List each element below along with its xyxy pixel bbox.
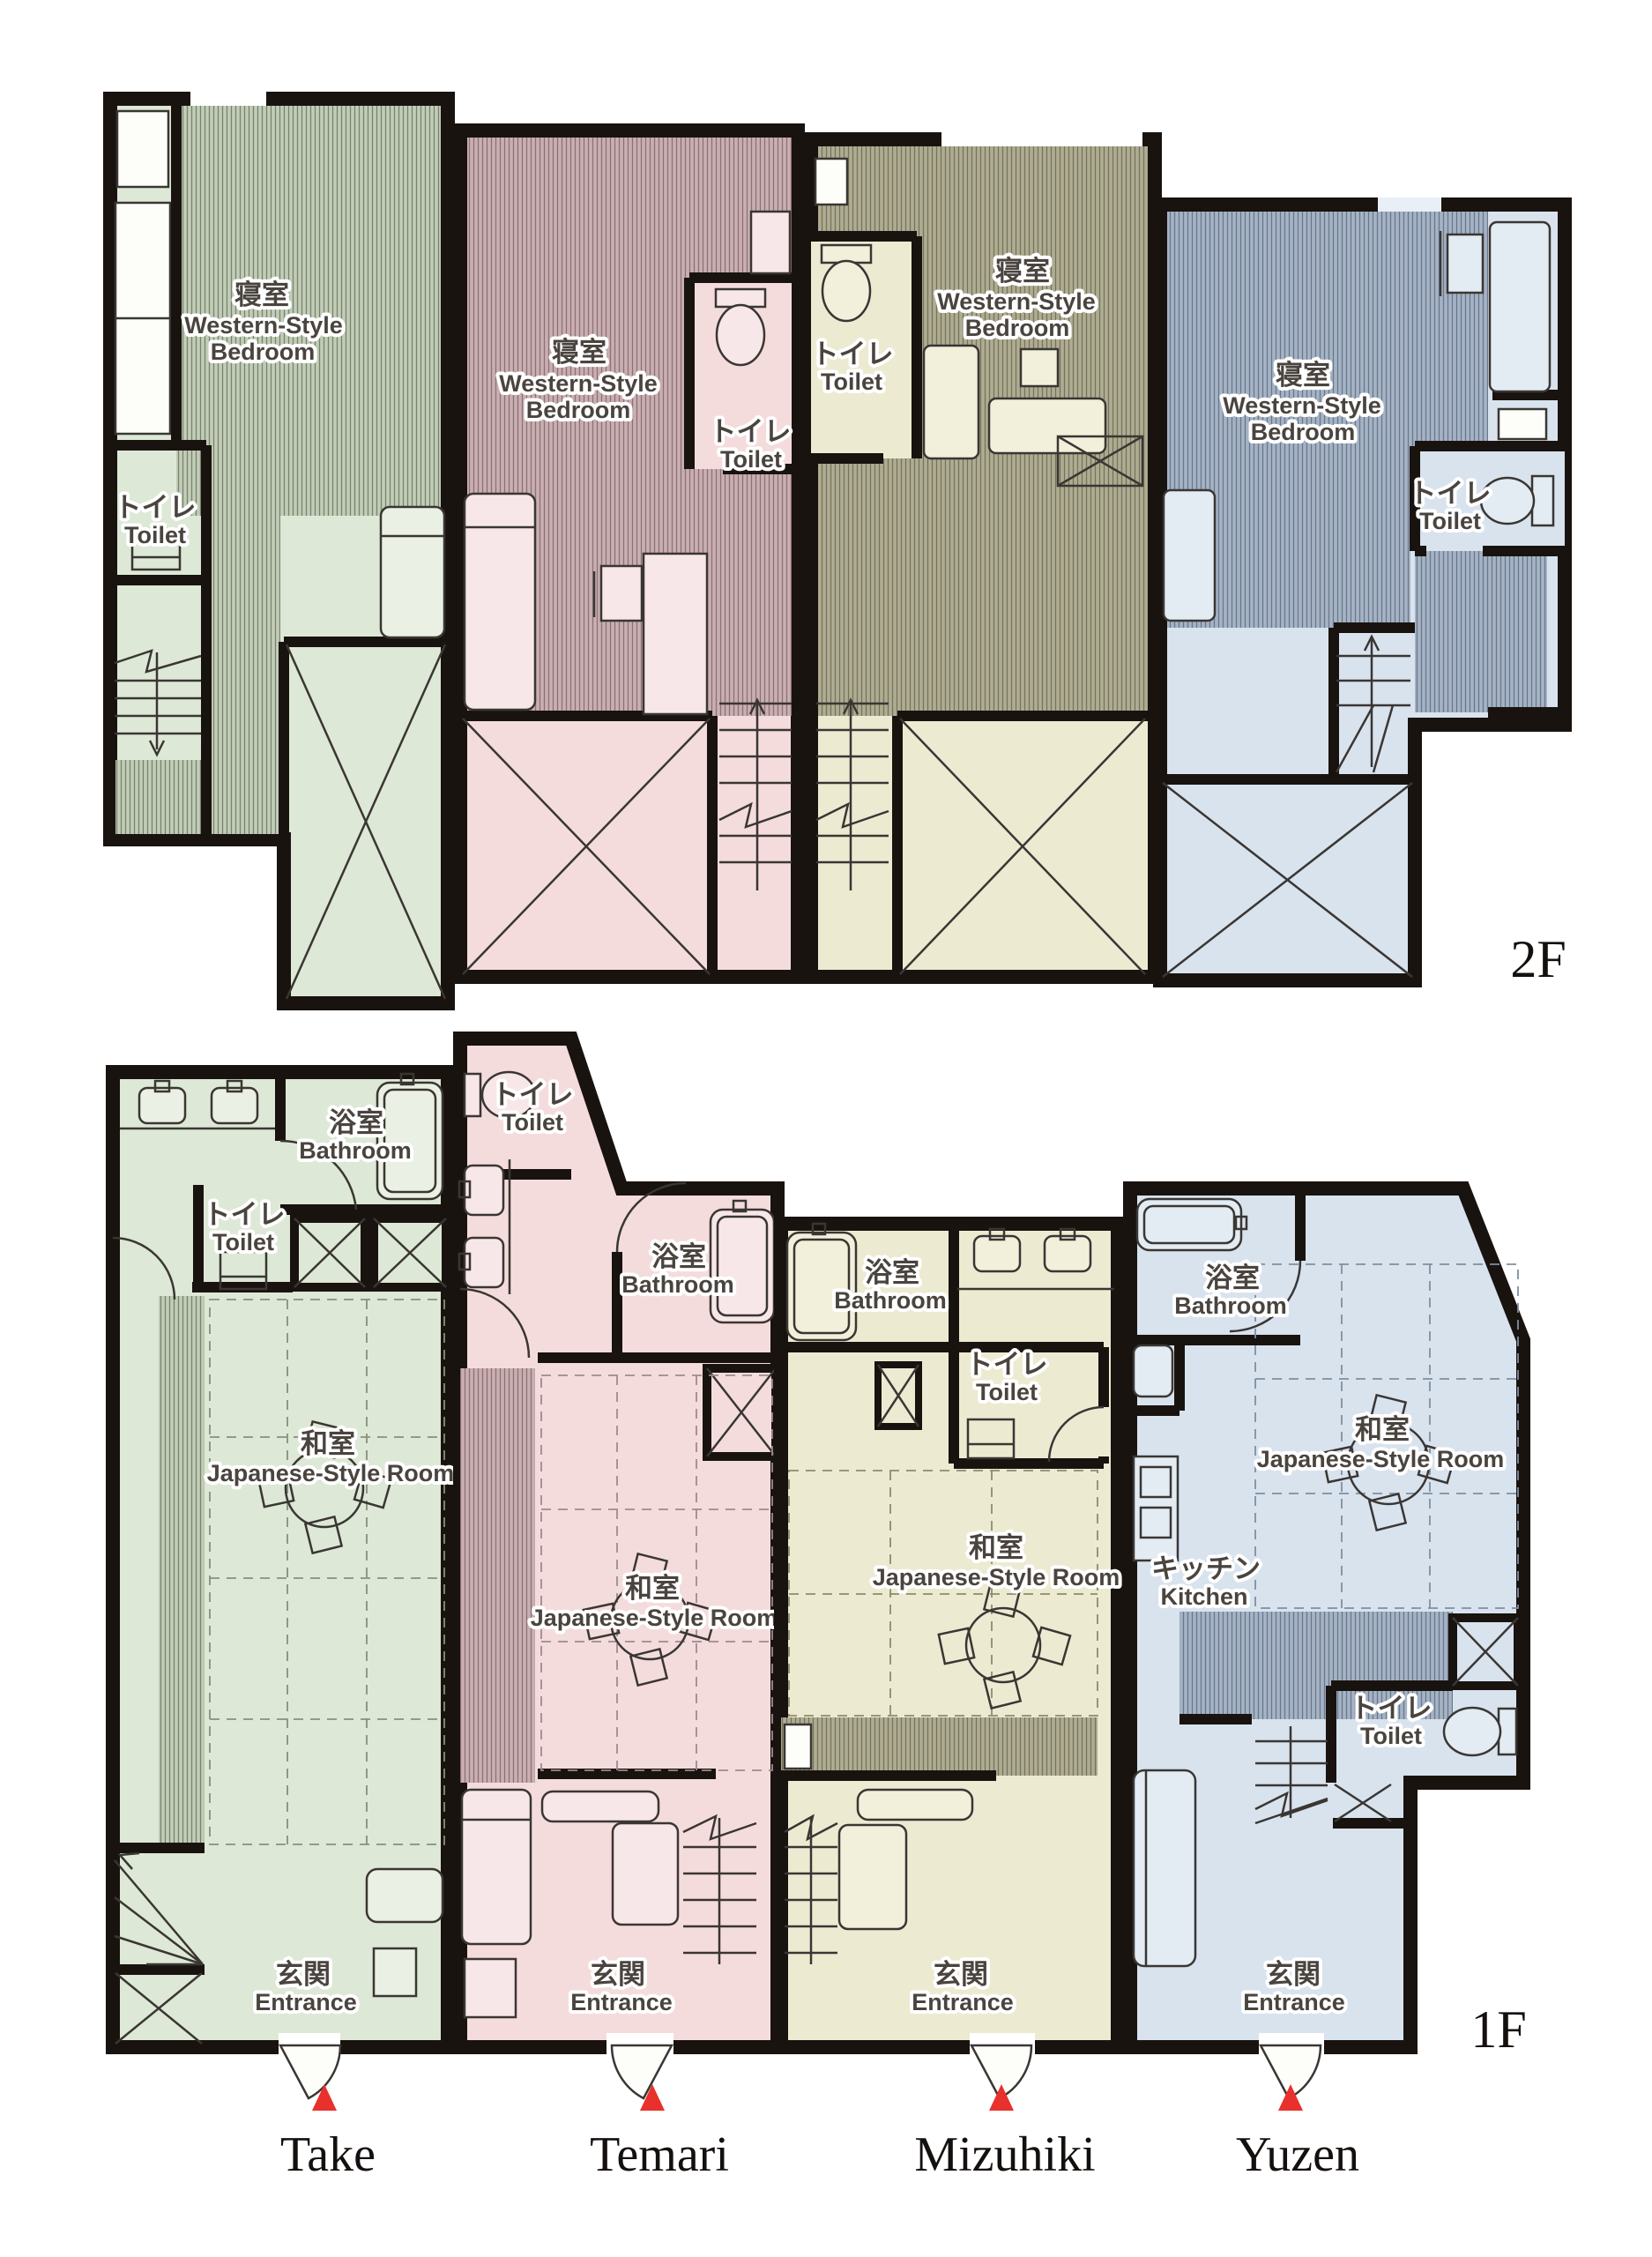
yuzen-1f-washitsu-label-jp: 和室: [1355, 1414, 1410, 1445]
mizuhiki-2f-bedroom-label-en2: Bedroom: [965, 315, 1070, 341]
unit-name-temari: Temari: [590, 2127, 729, 2182]
mizuhiki-2f-toilet-label-en: Toilet: [821, 369, 882, 395]
floor-2f: 寝室 Western-Style Bedroom トイレ Toilet: [110, 92, 1566, 1003]
mizuhiki-2f-toilet-fixture: [822, 245, 871, 321]
temari-1f-door-swing: [612, 2045, 672, 2098]
take-2f-bedroom-floor: [176, 106, 441, 516]
temari-1f-toilet-label-en: Toilet: [502, 1109, 563, 1136]
yuzen-1f-washitsu-label-en: Japanese-Style Room: [1257, 1446, 1505, 1472]
yuzen-1f-kitchen-label-en: Kitchen: [1160, 1583, 1247, 1610]
yuzen-1f-sofa: [1134, 1770, 1195, 1966]
take-1f-toilet-label-en: Toilet: [212, 1229, 274, 1255]
temari-2f-bedroom-label-jp: 寝室: [552, 337, 606, 368]
take-2f-toilet-label-jp: トイレ: [115, 492, 197, 523]
take-1f-toilet-label-jp: トイレ: [204, 1199, 286, 1230]
take-1f-bathtub: [377, 1074, 443, 1199]
take-1f-entrance-label-jp: 玄関: [276, 1959, 331, 1990]
yuzen-1f-bathroom-label-jp: 浴室: [1205, 1263, 1260, 1293]
take-1f-bathroom-label-jp: 浴室: [329, 1107, 383, 1138]
take-2f-bedroom-label-jp: 寝室: [234, 279, 289, 310]
yuzen-2f-corridor-floor: [1415, 551, 1547, 712]
mizuhiki-1f-toilet-label-en: Toilet: [976, 1379, 1038, 1405]
take-1f-washitsu-label-jp: 和室: [301, 1428, 355, 1459]
temari-2f-toilet-fixture: [716, 289, 765, 365]
yuzen-2f-bed-left: [1164, 490, 1215, 621]
mizuhiki-1f-entrance-label-en: Entrance: [912, 1989, 1014, 2015]
yuzen-2f-toilet-label-en: Toilet: [1419, 508, 1481, 534]
mizuhiki-2f-bedroom-label-en1: Western-Style: [937, 288, 1096, 315]
temari-1f-bathroom-label-en: Bathroom: [621, 1271, 734, 1298]
unit-name-take: Take: [280, 2127, 376, 2182]
temari-1f-engawa-floor: [460, 1368, 535, 1783]
mizuhiki-1f-bathroom-label-en: Bathroom: [834, 1287, 947, 1314]
unit-name-mizuhiki: Mizuhiki: [914, 2127, 1095, 2182]
temari-1f-entrance-label-en: Entrance: [570, 1989, 673, 2015]
floor-label-2f: 2F: [1510, 930, 1566, 988]
take-1f-washitsu-label-en: Japanese-Style Room: [207, 1460, 455, 1486]
take-1f-door-swing: [280, 2045, 340, 2098]
take-1f-engawa-floor: [159, 1296, 205, 1848]
mizuhiki-2f-bedroom-label-jp: 寝室: [995, 256, 1050, 287]
yuzen-1f-kitchen-label-jp: キッチン: [1151, 1553, 1261, 1584]
floor-plan-drawing: 寝室 Western-Style Bedroom トイレ Toilet: [0, 0, 1652, 2257]
floor-label-1f: 1F: [1470, 2000, 1526, 2059]
temari-1f-washitsu-label-jp: 和室: [625, 1573, 680, 1604]
temari-1f-entrance-label-jp: 玄関: [591, 1959, 645, 1990]
mizuhiki-1f-washitsu-label-jp: 和室: [969, 1532, 1023, 1563]
take-2f-bed: [381, 507, 444, 637]
yuzen-1f-closet-x-box: [1453, 1618, 1518, 1686]
yuzen-1f-sink: [1134, 1345, 1172, 1397]
take-2f-closets: [115, 111, 170, 434]
temari-1f-bathtub: [711, 1201, 774, 1322]
temari-2f-bedroom-label-en2: Bedroom: [526, 397, 631, 423]
floor-plan-page: 寝室 Western-Style Bedroom トイレ Toilet: [0, 0, 1652, 2257]
mizuhiki-1f-closet-x-box: [878, 1365, 919, 1426]
yuzen-1f-kitchen-counter: [1134, 1456, 1178, 1561]
temari-2f-bedroom-label-en1: Western-Style: [499, 370, 658, 397]
unit-temari-1f: トイレ Toilet 浴室 Bathroom 和室 Japanese-Style…: [459, 1039, 778, 2098]
take-2f-window: [190, 92, 266, 106]
unit-mizuhiki-2f: 寝室 Western-Style Bedroom トイレ Toilet: [811, 132, 1155, 977]
take-2f-bedroom-label-en2: Bedroom: [211, 339, 316, 365]
temari-1f-bathroom-label-jp: 浴室: [651, 1241, 706, 1272]
mizuhiki-1f-engawa-floor: [781, 1717, 1098, 1776]
temari-1f-closet-x-box: [707, 1368, 776, 1456]
mizuhiki-2f-window: [941, 132, 1142, 146]
yuzen-2f-window: [1378, 197, 1441, 212]
mizuhiki-2f-closet: [815, 159, 847, 205]
unit-temari-2f: 寝室 Western-Style Bedroom トイレ Toilet: [460, 130, 798, 977]
take-2f-toilet-label-en: Toilet: [124, 522, 186, 548]
mizuhiki-1f-bathroom-label-jp: 浴室: [865, 1257, 919, 1288]
yuzen-1f-toilet-fixture: [1444, 1708, 1516, 1755]
temari-1f-washitsu-label-en: Japanese-Style Room: [531, 1605, 778, 1631]
take-2f-corridor-floor: [208, 516, 280, 834]
yuzen-1f-bathtub: [1137, 1199, 1246, 1250]
yuzen-2f-toilet-fixture: [1481, 476, 1553, 525]
unit-take-2f: 寝室 Western-Style Bedroom トイレ Toilet: [110, 92, 448, 1003]
mizuhiki-1f-entrance-label-jp: 玄関: [934, 1959, 988, 1990]
unit-mizuhiki-1f: 浴室 Bathroom トイレ Toilet 和室 Japanese-Style…: [781, 1224, 1120, 2098]
unit-yuzen-1f: 浴室 Bathroom キッチン Kitchen 和室 Japanese-Sty…: [1130, 1188, 1523, 2098]
yuzen-2f-bedroom-label-en2: Bedroom: [1251, 419, 1356, 445]
take-1f-closet-x-boxes: [294, 1218, 446, 1287]
temari-2f-toilet-label-jp: トイレ: [710, 416, 792, 447]
unit-name-yuzen: Yuzen: [1236, 2127, 1359, 2182]
mizuhiki-2f-toilet-label-jp: トイレ: [812, 339, 894, 369]
unit-yuzen-2f: 寝室 Western-Style Bedroom トイレ Toilet: [1160, 197, 1565, 980]
yuzen-1f-toilet-label-jp: トイレ: [1351, 1693, 1432, 1724]
mizuhiki-1f-shelf: [785, 1724, 811, 1769]
yuzen-1f-entrance-label-en: Entrance: [1243, 1989, 1345, 2015]
unit-name-markers: Take Temari Mizuhiki Yuzen: [280, 2084, 1359, 2182]
temari-1f-toilet-label-jp: トイレ: [492, 1079, 574, 1110]
take-1f-bathroom-label-en: Bathroom: [299, 1137, 412, 1164]
yuzen-2f-bedroom-label-en1: Western-Style: [1223, 392, 1381, 419]
take-2f-stair-landing: [115, 760, 205, 834]
temari-2f-toilet-label-en: Toilet: [720, 446, 782, 473]
floor-1f: 浴室 Bathroom トイレ Toilet 和室 Japanese-Style…: [113, 1039, 1527, 2098]
take-1f-entrance-label-en: Entrance: [255, 1989, 357, 2015]
unit-take-1f: 浴室 Bathroom トイレ Toilet 和室 Japanese-Style…: [113, 1072, 454, 2098]
yuzen-2f-bedroom-label-jp: 寝室: [1276, 360, 1330, 391]
yuzen-2f-closet: [1499, 409, 1546, 439]
yuzen-1f-entrance-label-jp: 玄関: [1266, 1959, 1321, 1990]
take-2f-bedroom-label-en1: Western-Style: [184, 312, 343, 339]
yuzen-1f-toilet-label-en: Toilet: [1360, 1723, 1422, 1749]
yuzen-1f-bathroom-label-en: Bathroom: [1174, 1292, 1287, 1319]
mizuhiki-1f-toilet-label-jp: トイレ: [966, 1349, 1048, 1380]
temari-2f-shelf: [751, 212, 790, 273]
mizuhiki-1f-bathtub: [787, 1224, 856, 1340]
yuzen-2f-toilet-label-jp: トイレ: [1410, 478, 1492, 509]
mizuhiki-1f-washitsu-label-en: Japanese-Style Room: [873, 1564, 1120, 1590]
